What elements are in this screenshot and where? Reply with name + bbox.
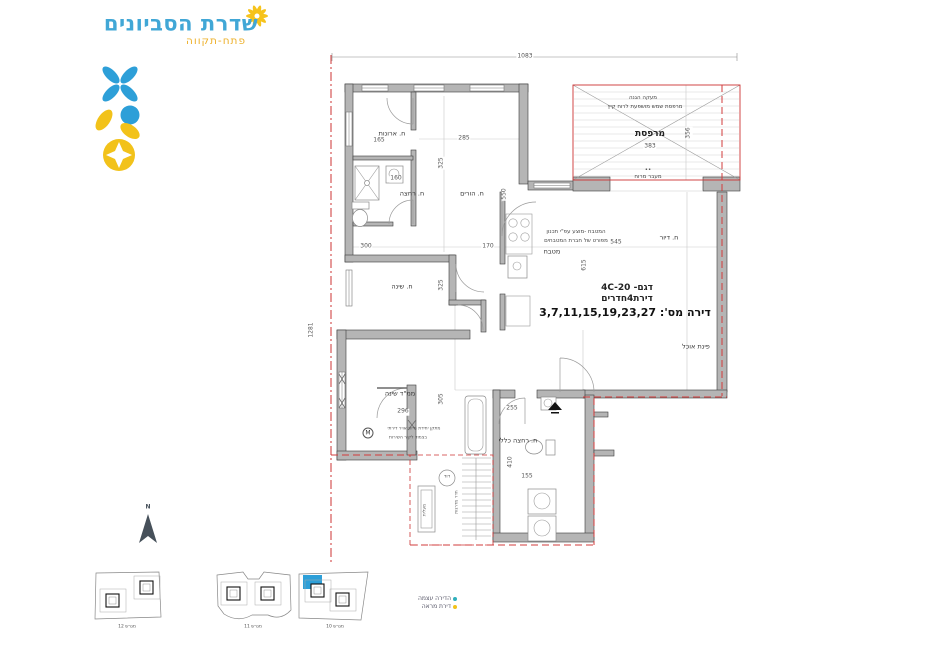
stairwell-label: חדר מדרגות — [456, 490, 461, 513]
dim-parents-bath: 160 — [389, 176, 402, 183]
brand-title: שדרת הסביונים — [104, 12, 258, 35]
dimension-chains — [353, 96, 717, 390]
floor-plan-drawing — [0, 0, 950, 650]
dim-mamad-w: 296 — [396, 409, 409, 416]
ac-note-symbol: M — [363, 428, 374, 439]
elevator-label: מעלית — [424, 504, 429, 516]
floor-plan-page: שדרת הסביונים פתח-תקווה 1083 1281 ח. ארו… — [0, 0, 950, 650]
room-mamad-label: ממ"ד שינה — [385, 390, 415, 397]
north-label: N — [145, 505, 150, 512]
brand-subtitle: פתח-תקווה — [186, 36, 246, 48]
boiler-label: דוד — [444, 476, 450, 481]
dim-parents-h1: 325 — [439, 156, 446, 169]
dim-bath-2: 410 — [508, 455, 515, 468]
room-balcony-label: מרפסת — [635, 130, 665, 140]
balcony-railing-note: מעקה הגנה — [629, 95, 657, 101]
dim-mamad-h: 305 — [439, 392, 446, 405]
dim-bath-3: 155 — [520, 474, 533, 481]
site-lot-11-label: מגרש 11 — [244, 626, 262, 631]
room-living-label: ח. דיור — [660, 234, 679, 241]
dim-overall-width: 1083 — [516, 54, 533, 61]
dining-label: פינת אוכל — [682, 343, 710, 350]
site-lot-10-label: מגרש 10 — [326, 626, 344, 631]
windows — [339, 85, 570, 408]
legend-mirror-label: דירת מראה — [422, 603, 451, 610]
site-lot-12-label: מגרש 12 — [118, 626, 136, 631]
site-plan-lot-12 — [95, 572, 161, 619]
dim-living-w: 545 — [609, 240, 622, 247]
kitchen-note-line1: המטבח -מוצע עפ"י תכנון — [546, 229, 605, 235]
north-arrow-icon — [139, 514, 157, 543]
apartment-type: דירת4חדרים — [601, 295, 653, 305]
legend: הדירה עצמה דירת מראה — [393, 595, 457, 611]
stairs — [462, 458, 491, 540]
kitchen-note-line2: מפורט של חברת המטבחים — [544, 238, 608, 244]
doors — [339, 98, 594, 430]
legend-item-self: הדירה עצמה — [393, 595, 457, 602]
dim-balcony-h: 356 — [686, 126, 693, 139]
dim-balcony-area: 383 — [643, 144, 656, 151]
apartment-model: דגם- 4C-20 — [601, 284, 653, 294]
apartment-numbers: דירה מס': 3,7,11,15,19,23,27 — [539, 307, 711, 319]
room-bedroom-label: ח. שינה — [391, 283, 412, 290]
dim-parents-w: 285 — [457, 136, 470, 143]
legend-item-mirror: דירת מראה — [393, 603, 457, 610]
balcony-passage-note: מעבר מרוח — [634, 174, 661, 180]
legend-self-dot-icon — [453, 597, 457, 601]
dim-bedroom-h: 325 — [439, 278, 446, 291]
dim-overall-height: 1281 — [309, 321, 316, 338]
balcony-note: מרפסת שמש מושפעת לרוח קיץ — [607, 104, 682, 110]
room-bath-label: ח. רחצה כללי — [499, 437, 538, 444]
dim-closet: 165 — [372, 138, 385, 145]
ac-note-line2: בצמוד לקיר השירות — [389, 437, 427, 442]
room-parents-label: ח. הורים — [460, 190, 484, 197]
balcony-dots: •• — [645, 167, 652, 173]
dim-living-h: 615 — [582, 258, 589, 271]
dim-parents-h2: 550 — [502, 187, 509, 200]
room-kitchen-label: מטבח — [544, 248, 561, 255]
dim-bath-1: 255 — [505, 406, 518, 413]
top-dimension-line — [332, 53, 737, 61]
legend-self-label: הדירה עצמה — [418, 595, 451, 602]
room-parents-bath-label: ח. רחצה — [400, 190, 424, 197]
legend-mirror-dot-icon — [453, 605, 457, 609]
ac-note-line1: מתקן יחידת מיזוג אויר דירתי — [388, 428, 441, 433]
dim-bedroom-w: 300 — [359, 244, 372, 251]
dim-bedroom-w2: 170 — [481, 244, 494, 251]
site-plan-lot-11 — [217, 572, 291, 619]
site-plan-lot-10 — [299, 572, 368, 620]
brand-emblem-icon — [92, 64, 142, 171]
